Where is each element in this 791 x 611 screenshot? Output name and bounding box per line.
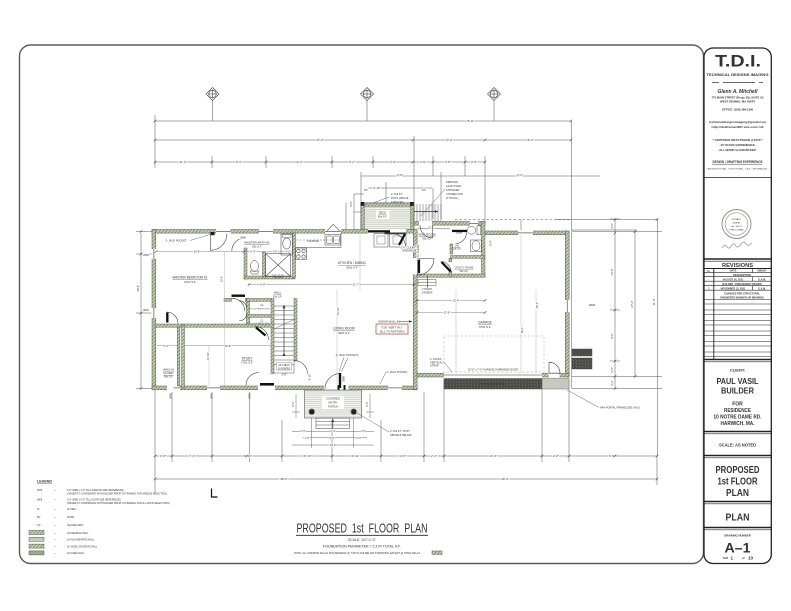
svg-text:REVISIONS: REVISIONS <box>722 263 753 269</box>
svg-text:2- JACK POCKET: 2- JACK POCKET <box>165 239 186 243</box>
svg-text:(OWNER TO COORDINATE WITH BUIL: (OWNER TO COORDINATE WITH BUILDER PRIOR … <box>67 493 167 496</box>
svg-text:DESIGN / DRAFTING EXPERIENCE: DESIGN / DRAFTING EXPERIENCE <box>713 160 763 164</box>
svg-text:96± S.F.: 96± S.F. <box>378 215 388 219</box>
svg-text:WEST DENNIS, MA 02670: WEST DENNIS, MA 02670 <box>720 100 756 104</box>
svg-text:PLAN: PLAN <box>726 488 749 499</box>
svg-text:PLAN: PLAN <box>726 513 750 524</box>
svg-text:POST (ABOVE: POST (ABOVE <box>391 196 409 200</box>
svg-text:ABOVE & BELOW: ABOVE & BELOW <box>390 433 412 437</box>
svg-text:2'-6": 2'-6" <box>420 160 426 164</box>
svg-text:WALK-IN: WALK-IN <box>163 368 174 372</box>
svg-text:DRAWING NUMBER: DRAWING NUMBER <box>724 534 751 538</box>
svg-text:SHOWER: SHOWER <box>274 277 284 279</box>
svg-text:4'-10": 4'-10" <box>308 374 312 381</box>
svg-text:8'-8": 8'-8" <box>260 283 265 287</box>
svg-text:2'-0": 2'-0" <box>300 429 305 433</box>
svg-text:* ARCHITECTURAL - STRUCTURAL -: * ARCHITECTURAL - STRUCTURAL - CIVIL - M… <box>707 168 769 171</box>
svg-text:90± S.F.: 90± S.F. <box>252 245 262 249</box>
svg-text:1st FLOOR: 1st FLOOR <box>718 477 759 488</box>
svg-text:50± S.F.: 50± S.F. <box>453 248 462 251</box>
svg-text:3'-6": 3'-6" <box>610 223 614 229</box>
svg-text:2 RISERS: 2 RISERS <box>422 291 433 294</box>
svg-text:3'-8": 3'-8" <box>445 160 451 164</box>
svg-text:http://draftsman987.wix.com/ t: http://draftsman987.wix.com/ tdi <box>712 125 764 129</box>
svg-text:2846: 2846 <box>143 253 149 257</box>
svg-text:4'-8": 4'-8" <box>400 454 406 458</box>
svg-text:S.F.: S.F. <box>37 525 41 527</box>
svg-text:technicaldesignsimaging@gmail.: technicaldesignsimaging@gmail.com <box>709 120 766 124</box>
svg-text:KITCHEN / DINING: KITCHEN / DINING <box>338 261 366 265</box>
svg-text:31'-0": 31'-0" <box>652 298 656 305</box>
svg-text:13'-0": 13'-0" <box>445 138 453 142</box>
svg-text:G.A.M.: G.A.M. <box>758 278 766 281</box>
svg-text:5'-2": 5'-2" <box>163 344 168 348</box>
svg-text:No. 34574: No. 34574 <box>731 226 742 228</box>
svg-text:9'-6": 9'-6" <box>610 333 614 339</box>
svg-text:6'-0": 6'-0" <box>365 401 369 406</box>
svg-text:2- JACK POCKETS: 2- JACK POCKETS <box>336 353 359 357</box>
svg-text:2846: 2846 <box>37 490 43 492</box>
svg-text:No.: No. <box>707 269 711 273</box>
svg-text:STRUCTURAL: STRUCTURAL <box>729 229 744 232</box>
svg-text:RONALD: RONALD <box>732 218 742 221</box>
svg-text:16'-8": 16'-8" <box>225 344 232 348</box>
svg-text:CONNECTOR: CONNECTOR <box>446 192 463 196</box>
svg-text:SHT: SHT <box>723 556 729 560</box>
svg-text:AUGUST 26, 2021: AUGUST 26, 2021 <box>723 278 745 281</box>
svg-text:90± S.F.: 90± S.F. <box>422 237 432 241</box>
svg-text:DESCRIPTION: DESCRIPTION <box>733 273 751 277</box>
svg-text:10'-10": 10'-10" <box>206 352 210 360</box>
svg-text:DIMPEL: DIMPEL <box>732 223 741 225</box>
svg-text:DWN.BY: DWN.BY <box>757 271 767 273</box>
svg-text:SCALE: AS NOTED: SCALE: AS NOTED <box>719 443 756 448</box>
svg-text:ENTRY: ENTRY <box>328 401 337 405</box>
svg-text:RESIDENCE: RESIDENCE <box>724 408 752 414</box>
svg-text:HALL: HALL <box>274 291 282 295</box>
svg-text:PROPOSED 1st FLOOR PLAN: PROPOSED 1st FLOOR PLAN <box>297 522 428 536</box>
svg-text:CRUSHED STONE: CRUSHED STONE <box>481 382 505 386</box>
svg-text:CHANGES PER STRUCTURAL: CHANGES PER STRUCTURAL <box>724 293 761 296</box>
svg-text:2'-8" WIDE x 4'-6" TALL WINDOW: 2'-8" WIDE x 4'-6" TALL WINDOW SIZE (REF… <box>67 489 124 492</box>
svg-text:12'-2": 12'-2" <box>295 160 303 164</box>
svg-text:29'-6": 29'-6" <box>136 285 140 292</box>
svg-text:(OWNER TO COORDINATE WITH BUIL: (OWNER TO COORDINATE WITH BUILDER PRIOR … <box>67 502 170 505</box>
svg-text:6'-1": 6'-1" <box>428 225 434 229</box>
svg-text:16": 16" <box>364 188 368 192</box>
svg-text:47'-8": 47'-8" <box>316 138 324 142</box>
svg-text:28'-0": 28'-0" <box>501 477 509 481</box>
svg-text:* CERTIFIED DRAFTSMAN @1978 *: * CERTIFIED DRAFTSMAN @1978 * <box>713 138 764 142</box>
svg-text:16 RISERS: 16 RISERS <box>278 368 291 371</box>
svg-text:10 NOTRE DAME RD.: 10 NOTRE DAME RD. <box>714 415 763 421</box>
svg-text:4'-0": 4'-0" <box>349 201 353 207</box>
svg-text:STRINGER: STRINGER <box>446 188 460 192</box>
svg-text:7'-4": 7'-4" <box>189 454 195 458</box>
svg-text:9'-8": 9'-8" <box>609 454 615 458</box>
svg-text:2'-0" x 6'-8" SHELF & POLE: 2'-0" x 6'-8" SHELF & POLE <box>249 309 271 311</box>
svg-text:12'-6": 12'-6" <box>220 276 224 283</box>
svg-text:8'-11": 8'-11" <box>352 454 359 458</box>
svg-text:773 MAIN STREET (Route 28), SU: 773 MAIN STREET (Route 28), SUITE A2 <box>712 96 765 100</box>
svg-text:4'-0": 4'-0" <box>285 249 290 253</box>
svg-text:3'-6": 3'-6" <box>471 160 477 164</box>
svg-text:MUD ROOM: MUD ROOM <box>419 233 436 237</box>
svg-text:2846: 2846 <box>210 393 214 399</box>
svg-text:PROPOSED: PROPOSED <box>716 465 760 476</box>
svg-text:STOOP: STOOP <box>579 354 586 356</box>
svg-text:DATE: DATE <box>730 269 737 273</box>
svg-text:- ALL WORK GUARANTEED -: - ALL WORK GUARANTEED - <box>718 148 758 152</box>
svg-text:SHEAR WALL #1: SHEAR WALL #1 <box>378 320 400 324</box>
svg-text:11'-3": 11'-3" <box>179 160 186 164</box>
svg-text:21'-7": 21'-7" <box>353 283 360 287</box>
svg-text:DECK: DECK <box>379 211 387 215</box>
svg-text:3'-8": 3'-8" <box>390 160 396 164</box>
svg-text:OFFICE: (508) 398-1306: OFFICE: (508) 398-1306 <box>722 108 754 112</box>
svg-text:16'-0" x 7'-0" GARAGE OVERHEAD: 16'-0" x 7'-0" GARAGE OVERHEAD DOOR <box>468 368 518 372</box>
svg-text:PORCH: PORCH <box>328 405 338 409</box>
svg-text:6'-0": 6'-0" <box>291 401 295 406</box>
svg-text:LIVING ROOM: LIVING ROOM <box>333 327 355 331</box>
svg-text:14'-0": 14'-0" <box>610 268 614 275</box>
svg-text:16'-8": 16'-8" <box>194 249 201 253</box>
svg-text:8'-8": 8'-8" <box>489 240 493 246</box>
svg-text:4'-0": 4'-0" <box>356 436 361 440</box>
svg-text:12'-6": 12'-6" <box>444 311 451 315</box>
svg-text:DOWN: DOWN <box>67 517 75 519</box>
svg-text:10'-0": 10'-0" <box>330 443 337 447</box>
svg-text:2846: 2846 <box>589 303 596 307</box>
svg-text:27'-0": 27'-0" <box>630 300 634 307</box>
svg-text:13'-6": 13'-6" <box>453 299 460 303</box>
svg-text:DN: DN <box>37 517 41 519</box>
svg-text:OPENING: OPENING <box>402 249 414 253</box>
svg-text:T.D.I.: T.D.I. <box>715 53 761 71</box>
svg-text:3'-6": 3'-6" <box>610 367 614 373</box>
svg-text:2868: 2868 <box>37 500 43 502</box>
svg-text:SILL TO RAFTERS: SILL TO RAFTERS <box>380 330 405 334</box>
svg-text:PAUL VASIL: PAUL VASIL <box>717 377 759 386</box>
svg-text:3'-0": 3'-0" <box>272 249 277 253</box>
svg-text:2868: 2868 <box>240 235 246 239</box>
svg-text:2846: 2846 <box>143 308 149 312</box>
svg-text:2868: 2868 <box>342 376 346 382</box>
svg-text:26'-0": 26'-0" <box>535 302 539 309</box>
svg-text:10'-10": 10'-10" <box>336 307 340 315</box>
svg-text:2- 6x6 P.T.: 2- 6x6 P.T. <box>391 192 403 196</box>
svg-text:SIMPSON: SIMPSON <box>446 180 458 184</box>
svg-text:NOTE: ALL INTERIOR WALLS NON-: NOTE: ALL INTERIOR WALLS NON-BEARING (1)… <box>294 552 421 555</box>
svg-text:2x4 NON-BEARING WALL: 2x4 NON-BEARING WALL <box>67 539 95 542</box>
svg-text:56± S.F.: 56± S.F. <box>164 376 173 379</box>
svg-text:HARWICH, MA.: HARWICH, MA. <box>721 421 756 427</box>
svg-text:BUILDER: BUILDER <box>721 387 754 396</box>
svg-text:360± S.F.: 360± S.F. <box>338 331 350 335</box>
svg-text:10" WIDE CONCRETE WALL: 10" WIDE CONCRETE WALL <box>67 545 98 548</box>
svg-text:LACE STAIR: LACE STAIR <box>446 184 461 188</box>
svg-text:260± S.F.: 260± S.F. <box>346 266 358 270</box>
svg-text:2x6 BEARING WALL: 2x6 BEARING WALL <box>67 532 89 535</box>
svg-text:TECHNICAL DESIGNS IMAGING: TECHNICAL DESIGNS IMAGING <box>707 72 769 77</box>
svg-text:CL: CL <box>260 319 264 323</box>
svg-text:8'-10": 8'-10" <box>304 454 312 458</box>
svg-text:5'-4": 5'-4" <box>250 249 255 253</box>
svg-text:(TYPICAL): (TYPICAL) <box>446 196 459 200</box>
svg-text:5'-2": 5'-2" <box>349 160 355 164</box>
svg-text:16'-0": 16'-0" <box>526 138 534 142</box>
svg-text:A–1: A–1 <box>725 541 752 556</box>
svg-text:BUILDER - PRELIMINARY REVIEW: BUILDER - PRELIMINARY REVIEW <box>722 283 762 286</box>
svg-text:10: 10 <box>748 556 754 561</box>
svg-text:CLOSET: CLOSET <box>163 371 174 375</box>
svg-text:8'-6": 8'-6" <box>236 160 242 164</box>
svg-text:48'-8": 48'-8" <box>280 477 288 481</box>
svg-text:-: - <box>708 278 709 282</box>
svg-text:Glenn A. Mitchell: Glenn A. Mitchell <box>718 89 758 95</box>
svg-text:20± S.F.: 20± S.F. <box>460 270 469 273</box>
svg-text:NOVEMBER 13, 2021: NOVEMBER 13, 2021 <box>721 287 746 290</box>
svg-text:675± S.F.: 675± S.F. <box>479 325 491 329</box>
svg-text:76'-8": 76'-8" <box>466 119 474 123</box>
svg-text:ENGINEERS WANKED-UP DRAWING: ENGINEERS WANKED-UP DRAWING <box>720 296 764 299</box>
svg-text:MASTER BATH #1: MASTER BATH #1 <box>244 241 270 245</box>
svg-text:FOUNDATION PERIMETER =: FOUNDATION PERIMETER = 2,174 TOTAL S.F. <box>323 545 401 549</box>
svg-text:2'-0" x 6'-8" SHELF & POLE: 2'-0" x 6'-8" SHELF & POLE <box>249 323 271 325</box>
svg-text:2x4 KNEE WALL: 2x4 KNEE WALL <box>67 552 85 555</box>
svg-text:2'-0": 2'-0" <box>360 429 365 433</box>
svg-text:2'-2": 2'-2" <box>431 454 437 458</box>
svg-text:9'-10": 9'-10" <box>373 186 380 190</box>
svg-text:CLIENT:: CLIENT: <box>730 368 745 373</box>
svg-text:COUNTER: COUNTER <box>307 240 319 243</box>
svg-text:8'-0": 8'-0" <box>329 436 334 440</box>
svg-text:SCALE: 1/4"=1'-0": SCALE: 1/4"=1'-0" <box>348 538 376 542</box>
svg-text:of: of <box>742 556 745 560</box>
svg-text:16'-0": 16'-0" <box>489 454 497 458</box>
svg-text:HPA PORTAL FRAME (SEE SH-2): HPA PORTAL FRAME (SEE SH-2) <box>600 406 640 410</box>
svg-text:GARAGE: GARAGE <box>478 321 492 325</box>
svg-text:2'-8": 2'-8" <box>282 374 287 377</box>
svg-text:G.A.M.: G.A.M. <box>758 287 766 290</box>
svg-text:2'-8" WIDE x 6'-8" TALL DOOR S: 2'-8" WIDE x 6'-8" TALL DOOR SIZE (REFER… <box>67 499 121 502</box>
svg-text:3'-8": 3'-8" <box>160 454 166 458</box>
svg-text:170± S.F.: 170± S.F. <box>241 361 253 365</box>
svg-text:9'-8": 9'-8" <box>397 173 403 177</box>
svg-text:SQUARE FEET: SQUARE FEET <box>67 524 84 527</box>
svg-text:2'-8": 2'-8" <box>553 454 559 458</box>
svg-text:LEGEND: LEGEND <box>37 480 52 484</box>
svg-text:CLOSET: CLOSET <box>67 509 77 511</box>
svg-text:18'-0": 18'-0" <box>520 327 524 334</box>
svg-text:- 40 YEARS EXPERIENCE -: - 40 YEARS EXPERIENCE - <box>719 143 757 147</box>
svg-text:CL: CL <box>260 303 264 307</box>
svg-text:9'-2": 9'-2" <box>517 173 523 177</box>
svg-text:2- JACK POCKET: 2- JACK POCKET <box>386 370 407 374</box>
svg-text:STRAP: STRAP <box>430 364 439 368</box>
svg-text:2- 6x6 P.T. POST: 2- 6x6 P.T. POST <box>390 429 410 433</box>
svg-text:1'-0": 1'-0" <box>304 436 309 440</box>
svg-text:2'-6": 2'-6" <box>610 380 614 386</box>
svg-text:FOR: FOR <box>732 402 743 408</box>
svg-text:16": 16" <box>422 188 426 192</box>
svg-text:COVERED: COVERED <box>326 397 339 401</box>
svg-text:270± S.F.: 270± S.F. <box>184 280 196 284</box>
svg-text:3'-0" CLEAR: 3'-0" CLEAR <box>416 245 420 260</box>
svg-text:6'-0": 6'-0" <box>330 429 335 433</box>
svg-text:36± S.F.: 36± S.F. <box>273 295 283 299</box>
